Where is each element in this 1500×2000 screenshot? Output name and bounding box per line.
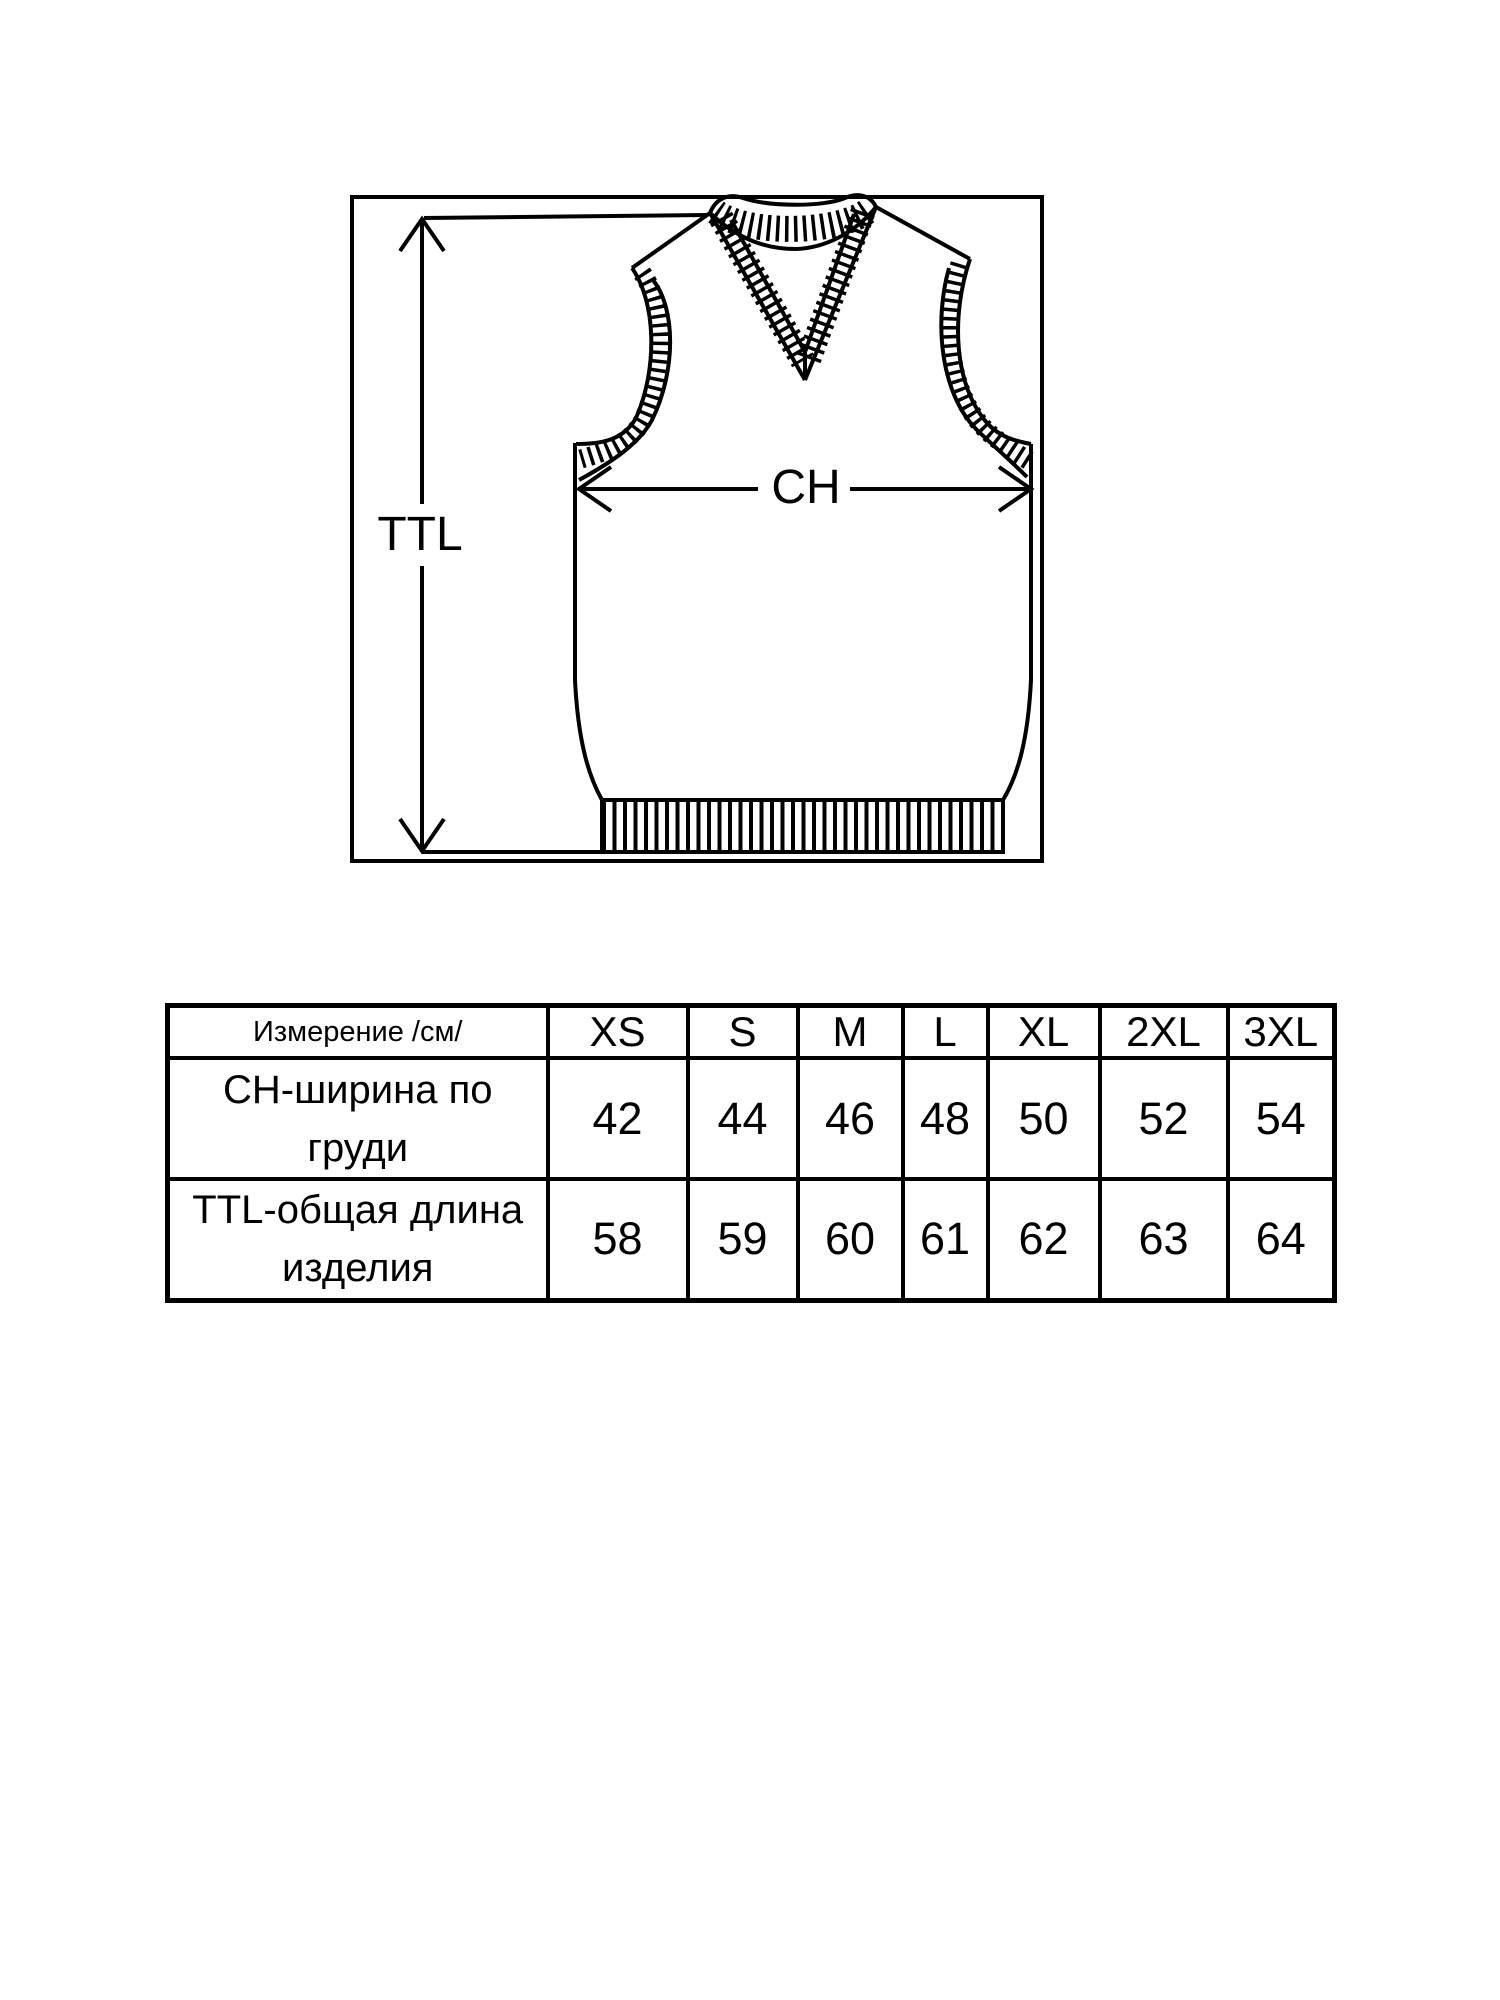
value-cell: 54 — [1228, 1058, 1335, 1179]
value-cell: 42 — [548, 1058, 688, 1179]
row-label-chest-width: CH-ширина по груди — [168, 1058, 548, 1179]
vest-drawing — [575, 195, 1031, 852]
armhole-band-left — [576, 268, 670, 480]
total-length-row: TTL-общая длина изделия 58 59 60 61 62 6… — [168, 1179, 1335, 1300]
measure-unit-header: Измерение /см/ — [168, 1006, 548, 1059]
chest-width-row: CH-ширина по груди 42 44 46 48 50 52 54 — [168, 1058, 1335, 1179]
value-cell: 61 — [903, 1179, 988, 1300]
row-label-total-length: TTL-общая длина изделия — [168, 1179, 548, 1300]
value-cell: 48 — [903, 1058, 988, 1179]
size-header-xs: XS — [548, 1006, 688, 1059]
value-cell: 44 — [688, 1058, 798, 1179]
value-cell: 62 — [988, 1179, 1100, 1300]
size-chart-table: Измерение /см/ XS S M L XL 2XL 3XL CH-ши… — [165, 1003, 1337, 1303]
value-cell: 52 — [1100, 1058, 1228, 1179]
hem-rib-band — [602, 800, 1003, 852]
size-header-2xl: 2XL — [1100, 1006, 1228, 1059]
size-chart-page: TTL CH Измерение /см/ XS S M — [0, 0, 1500, 2000]
value-cell: 64 — [1228, 1179, 1335, 1300]
size-header-s: S — [688, 1006, 798, 1059]
size-header-l: L — [903, 1006, 988, 1059]
value-cell: 59 — [688, 1179, 798, 1300]
value-cell: 46 — [798, 1058, 903, 1179]
value-cell: 50 — [988, 1058, 1100, 1179]
size-diagram-figure: TTL CH — [330, 165, 1070, 880]
shoulder-seam-right — [876, 207, 970, 259]
ch-label: CH — [771, 461, 840, 514]
size-header-m: M — [798, 1006, 903, 1059]
armhole-band-right — [941, 259, 1031, 477]
value-cell: 58 — [548, 1179, 688, 1300]
ttl-dimension-arrow: TTL — [377, 215, 1003, 852]
ch-dimension-arrow: CH — [579, 461, 1031, 514]
value-cell: 60 — [798, 1179, 903, 1300]
size-header-3xl: 3XL — [1228, 1006, 1335, 1059]
size-header-xl: XL — [988, 1006, 1100, 1059]
value-cell: 63 — [1100, 1179, 1228, 1300]
table-header-row: Измерение /см/ XS S M L XL 2XL 3XL — [168, 1006, 1335, 1059]
ttl-label: TTL — [377, 508, 462, 561]
shoulder-seam-left — [632, 213, 710, 268]
